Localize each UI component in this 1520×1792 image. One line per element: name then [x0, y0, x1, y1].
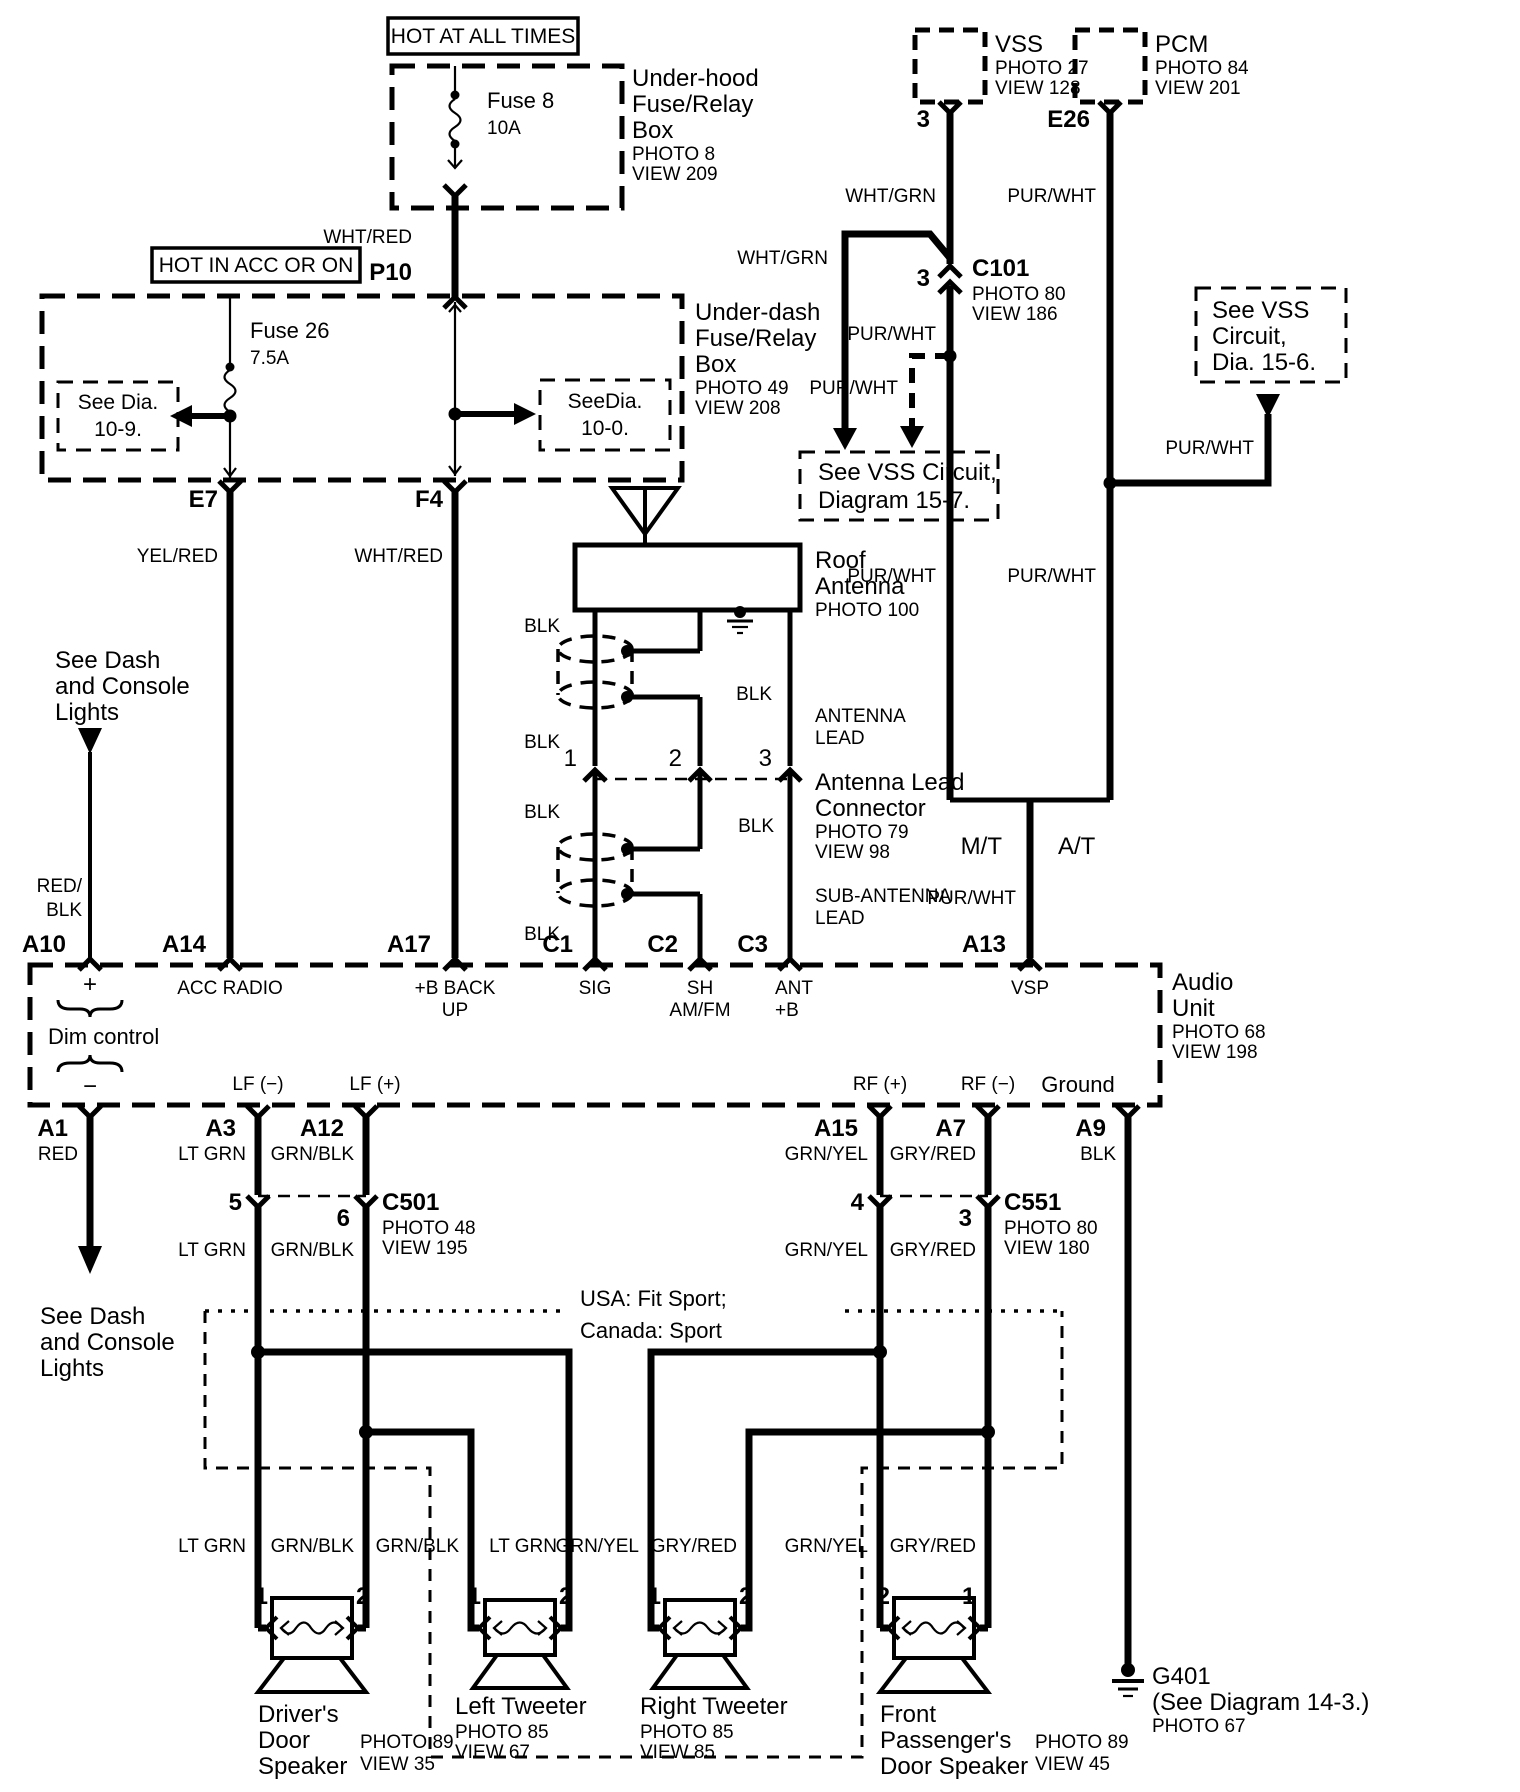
passenger-speaker-photo: PHOTO 89 — [1035, 1732, 1129, 1753]
wiring-diagram: HOT AT ALL TIMES Fuse 8 10A Under-hood F… — [0, 0, 1520, 1792]
g401-ref: (See Diagram 14-3.) — [1152, 1689, 1369, 1716]
wire-label-wht-grn-top: WHT/GRN — [845, 186, 936, 207]
vss-pin: 3 — [917, 106, 930, 133]
arrow-to-dia-10-9 — [170, 405, 192, 427]
pin-a14: A14 — [162, 931, 207, 958]
pin-a9: A9 — [1075, 1115, 1106, 1142]
pcm-pin: E26 — [1047, 106, 1090, 133]
fuse26-symbol — [225, 370, 236, 412]
fn-vsp: VSP — [1011, 978, 1049, 999]
arrow-to-dia-10-0 — [514, 403, 536, 425]
wire-label-pur-wht-156: PUR/WHT — [1165, 438, 1254, 459]
fn-sh-1: SH — [687, 978, 713, 999]
left-tweeter-title: Left Tweeter — [455, 1693, 587, 1720]
wire-label-pur-wht-mid1: PUR/WHT — [847, 566, 936, 587]
pin-e7: E7 — [189, 486, 218, 513]
fuse8-rating: 10A — [487, 118, 521, 139]
underdash-title-1: Under-dash — [695, 299, 820, 326]
fn-ground: Ground — [1041, 1072, 1114, 1097]
wire-label-pur-wht-mid2: PUR/WHT — [1007, 566, 1096, 587]
wire-label-blk-2: BLK — [736, 684, 772, 705]
fn-sig: SIG — [579, 978, 612, 999]
driver-speaker-title-1: Driver's — [258, 1701, 339, 1728]
hot-at-all-times-label: HOT AT ALL TIMES — [391, 25, 575, 48]
pin-a17: A17 — [387, 931, 431, 958]
driver-speaker-title-3: Speaker — [258, 1753, 347, 1780]
right-tweeter-pin-l: 1 — [648, 1583, 661, 1610]
underdash-view: VIEW 208 — [695, 398, 781, 419]
fuse26-label: Fuse 26 — [250, 318, 330, 343]
wire-label-wht-red-f4: WHT/RED — [354, 546, 443, 567]
left-tweeter-pin-l: 1 — [468, 1583, 481, 1610]
driver-speaker-photo: PHOTO 89 — [360, 1732, 454, 1753]
wire-label-pur-wht-top: PUR/WHT — [1007, 186, 1096, 207]
g401-title: G401 — [1152, 1663, 1211, 1690]
wire-label-yel-red: YEL/RED — [137, 546, 218, 567]
audio-unit-title-1: Audio — [1172, 969, 1233, 996]
pin-a13: A13 — [962, 931, 1006, 958]
tweeter-cone-icon — [473, 1655, 567, 1688]
sub-antenna-label-2: LEAD — [815, 908, 865, 929]
fn-ant-1: ANT — [775, 978, 813, 999]
wire-label-blk-a9: BLK — [1080, 1144, 1116, 1165]
see-dia-10-9-line1: See Dia. — [78, 391, 159, 414]
antenna-pin-2: 2 — [669, 745, 682, 772]
wire-label-grnblk-3: GRN/BLK — [271, 1536, 355, 1557]
passenger-door-speaker: 2 1 Front Passenger's Door Speaker PHOTO… — [877, 1583, 1129, 1780]
antenna-lead-label-1: ANTENNA — [815, 706, 906, 727]
fn-rf-minus: RF (−) — [961, 1074, 1015, 1095]
fn-backup-1: +B BACK — [415, 978, 496, 999]
wire-label-gryred-3: GRY/RED — [651, 1536, 737, 1557]
tweeter-cone-icon-2 — [653, 1655, 747, 1688]
see-dash-top-2: and Console — [55, 673, 190, 700]
passenger-speaker-title-1: Front — [880, 1701, 936, 1728]
fuse8-symbol — [450, 99, 461, 141]
pin-c1: C1 — [542, 931, 573, 958]
see-dia-10-0-line2: 10-0. — [581, 417, 629, 440]
pin-c3: C3 — [737, 931, 768, 958]
wire-label-pur-wht-c101: PUR/WHT — [847, 324, 936, 345]
see-vss-157-line2: Diagram 15-7. — [818, 487, 970, 514]
driver-speaker-pin-r: 2 — [356, 1583, 369, 1610]
c551-view: VIEW 180 — [1004, 1238, 1090, 1259]
antenna-pin-3: 3 — [759, 745, 772, 772]
antenna-connector-photo: PHOTO 79 — [815, 822, 909, 843]
speaker-wiring: LT GRN GRN/BLK GRN/BLK LT GRN GRN/YEL GR… — [178, 1207, 995, 1628]
wire-label-grnblk-2: GRN/BLK — [271, 1240, 355, 1261]
arrow-pur-wht — [900, 426, 924, 448]
see-dash-top-3: Lights — [55, 699, 119, 726]
pcm-view: VIEW 201 — [1155, 78, 1241, 99]
underhood-title-2: Fuse/Relay — [632, 91, 753, 118]
c501-view: VIEW 195 — [382, 1238, 468, 1259]
fn-dim-control: Dim control — [48, 1024, 159, 1049]
underhood-title-1: Under-hood — [632, 65, 759, 92]
underdash-title-3: Box — [695, 351, 736, 378]
mt-label: M/T — [961, 833, 1003, 860]
wire-label-grnblk-4: GRN/BLK — [376, 1536, 460, 1557]
roof-antenna-photo: PHOTO 100 — [815, 600, 919, 621]
wire-label-wht-grn-branch: WHT/GRN — [737, 248, 828, 269]
audio-unit-photo: PHOTO 68 — [1172, 1022, 1266, 1043]
c101-pin: 3 — [917, 265, 930, 292]
wire-label-gryred-2: GRY/RED — [890, 1240, 976, 1261]
antenna-lead-label-2: LEAD — [815, 728, 865, 749]
antenna-pin-1: 1 — [564, 745, 577, 772]
pcm-photo: PHOTO 84 — [1155, 58, 1249, 79]
underhood-fuse-box: Fuse 8 10A Under-hood Fuse/Relay Box PHO… — [392, 65, 759, 208]
wire-label-blk-3: BLK — [524, 732, 560, 753]
wire-label-ltgrn-3: LT GRN — [178, 1536, 246, 1557]
vss-view: VIEW 128 — [995, 78, 1081, 99]
speaker-cone-icon-2 — [880, 1658, 988, 1692]
wire-label-pur-wht-vsp: PUR/WHT — [927, 888, 1016, 909]
dash-console-lights-source: See Dash and Console Lights RED/ BLK — [37, 647, 190, 958]
sport-label-1: USA: Fit Sport; — [580, 1286, 727, 1311]
driver-speaker-pin-l: 1 — [255, 1583, 268, 1610]
pin-a7: A7 — [935, 1115, 966, 1142]
passenger-speaker-pin-l: 2 — [877, 1583, 890, 1610]
sport-variant-region: USA: Fit Sport; Canada: Sport — [205, 1286, 1062, 1757]
fn-sh-2: AM/FM — [669, 1000, 730, 1021]
fn-lf-plus: LF (+) — [349, 1074, 400, 1095]
right-tweeter-pin-r: 2 — [739, 1583, 752, 1610]
c501-pin-6: 6 — [337, 1205, 350, 1232]
right-tweeter: 1 2 Right Tweeter PHOTO 85 VIEW 85 — [640, 1583, 788, 1763]
c501-title: C501 — [382, 1189, 439, 1216]
pin-a15: A15 — [814, 1115, 858, 1142]
wire-label-gryred-1: GRY/RED — [890, 1144, 976, 1165]
driver-door-speaker: 1 2 Driver's Door Speaker PHOTO 89 VIEW … — [255, 1583, 454, 1780]
pin-f4: F4 — [415, 486, 444, 513]
wire-label-ltgrn-2: LT GRN — [178, 1240, 246, 1261]
right-tweeter-view: VIEW 85 — [640, 1742, 715, 1763]
underdash-photo: PHOTO 49 — [695, 378, 789, 399]
underdash-title-2: Fuse/Relay — [695, 325, 816, 352]
wire-label-grnyel-2: GRN/YEL — [785, 1240, 868, 1261]
pin-a1: A1 — [37, 1115, 68, 1142]
c501-photo: PHOTO 48 — [382, 1218, 476, 1239]
left-tweeter-view: VIEW 67 — [455, 1742, 530, 1763]
pin-c2: C2 — [647, 931, 678, 958]
brace-minus-icon — [58, 1055, 122, 1072]
wire-label-grnyel-4: GRN/YEL — [785, 1536, 868, 1557]
wire-label-gryred-4: GRY/RED — [890, 1536, 976, 1557]
wire-label-ltgrn-1: LT GRN — [178, 1144, 246, 1165]
passenger-speaker-view: VIEW 45 — [1035, 1754, 1110, 1775]
antenna-connector-title-1: Antenna Lead — [815, 769, 964, 796]
arrow-to-dash-lights — [78, 1246, 102, 1274]
right-tweeter-title: Right Tweeter — [640, 1693, 788, 1720]
arrow-from-dash-lights — [78, 728, 102, 754]
driver-speaker-title-2: Door — [258, 1727, 310, 1754]
passenger-speaker-pin-r: 1 — [962, 1583, 975, 1610]
wire-label-pur-wht-branch: PUR/WHT — [809, 378, 898, 399]
fn-minus: − — [83, 1073, 97, 1100]
right-tweeter-photo: PHOTO 85 — [640, 1722, 734, 1743]
fn-ant-2: +B — [775, 1000, 799, 1021]
wire-label-red: RED — [38, 1144, 78, 1165]
left-tweeter-photo: PHOTO 85 — [455, 1722, 549, 1743]
g401-photo: PHOTO 67 — [1152, 1716, 1246, 1737]
underhood-title-3: Box — [632, 117, 673, 144]
wire-label-wht-red-p10: WHT/RED — [323, 227, 412, 248]
passenger-speaker-title-2: Passenger's — [880, 1727, 1011, 1754]
c551-photo: PHOTO 80 — [1004, 1218, 1098, 1239]
fn-rf-plus: RF (+) — [853, 1074, 907, 1095]
fn-lf-minus: LF (−) — [232, 1074, 283, 1095]
see-dash-top-1: See Dash — [55, 647, 160, 674]
see-dash-bottom-2: and Console — [40, 1329, 175, 1356]
see-vss-156-line1: See VSS — [1212, 297, 1309, 324]
c551-pin-3: 3 — [959, 1205, 972, 1232]
see-vss-156-line3: Dia. 15-6. — [1212, 349, 1316, 376]
see-vss-157-line1: See VSS Circuit, — [818, 459, 997, 486]
mt-at-bracket: M/T A/T PUR/WHT — [927, 800, 1110, 958]
underdash-fuse-box: Fuse 26 7.5A See Dia. 10-9. SeeDia. 10-0… — [42, 296, 820, 480]
arrow-wht-grn — [833, 428, 857, 450]
c101-photo: PHOTO 80 — [972, 284, 1066, 305]
speaker-cone-icon — [258, 1658, 366, 1692]
see-dash-bottom-3: Lights — [40, 1355, 104, 1382]
audio-unit-view: VIEW 198 — [1172, 1042, 1258, 1063]
hot-in-acc-banner: HOT IN ACC OR ON — [152, 248, 360, 282]
wire-label-ltgrn-4: LT GRN — [489, 1536, 557, 1557]
fn-acc-radio: ACC RADIO — [177, 978, 283, 999]
wire-label-red-blk: BLK — [46, 900, 82, 921]
c101-view: VIEW 186 — [972, 304, 1058, 325]
fn-plus: + — [83, 971, 97, 998]
wire-label-grnblk-1: GRN/BLK — [271, 1144, 355, 1165]
c501-pin-5: 5 — [229, 1189, 242, 1216]
g401-ground: G401 (See Diagram 14-3.) PHOTO 67 — [1112, 1117, 1369, 1737]
see-dia-10-9-line2: 10-9. — [94, 418, 142, 441]
driver-speaker-view: VIEW 35 — [360, 1754, 435, 1775]
wire-label-blk-5: BLK — [738, 816, 774, 837]
wire-label-blk-4: BLK — [524, 802, 560, 823]
at-label: A/T — [1058, 833, 1096, 860]
antenna-lead-wiring: BLK BLK BLK BLK BLK BLK 1 2 3 ANTENNA LE… — [524, 610, 964, 958]
underhood-photo: PHOTO 8 — [632, 144, 715, 165]
pin-p10: P10 — [369, 259, 412, 286]
c101-connector: 3 C101 PHOTO 80 VIEW 186 — [917, 255, 1066, 325]
see-dia-10-0-line1: SeeDia. — [568, 390, 643, 413]
c551-pin-4: 4 — [851, 1189, 865, 1216]
pin-a12: A12 — [300, 1115, 344, 1142]
pin-a10: A10 — [22, 931, 66, 958]
wire-label-red-slash: RED/ — [37, 876, 83, 897]
audio-unit-title-2: Unit — [1172, 995, 1215, 1022]
fuse26-rating: 7.5A — [250, 348, 289, 369]
vss-branch-156: See VSS Circuit, Dia. 15-6. PUR/WHT — [1104, 288, 1347, 490]
antenna-connector-title-2: Connector — [815, 795, 926, 822]
hot-in-acc-label: HOT IN ACC OR ON — [159, 254, 353, 277]
passenger-speaker-title-3: Door Speaker — [880, 1753, 1028, 1780]
pcm-title: PCM — [1155, 31, 1208, 58]
audio-unit: Audio Unit PHOTO 68 VIEW 198 A10 A14 A17… — [22, 931, 1266, 1142]
c551-title: C551 — [1004, 1189, 1061, 1216]
wire-label-grnyel-3: GRN/YEL — [556, 1536, 639, 1557]
fn-backup-2: UP — [442, 1000, 468, 1021]
sport-label-2: Canada: Sport — [580, 1318, 722, 1343]
hot-at-all-times-banner: HOT AT ALL TIMES — [388, 18, 578, 54]
vss-title: VSS — [995, 31, 1043, 58]
fuse8-label: Fuse 8 — [487, 88, 554, 113]
underhood-view: VIEW 209 — [632, 164, 718, 185]
antenna-connector-view: VIEW 98 — [815, 842, 890, 863]
see-dash-bottom-1: See Dash — [40, 1303, 145, 1330]
wire-label-blk-1: BLK — [524, 616, 560, 637]
c101-title: C101 — [972, 255, 1029, 282]
wire-label-grnyel-1: GRN/YEL — [785, 1144, 868, 1165]
brace-plus-icon — [58, 1000, 122, 1017]
left-tweeter-pin-r: 2 — [559, 1583, 572, 1610]
see-vss-156-line2: Circuit, — [1212, 323, 1287, 350]
pin-a3: A3 — [205, 1115, 236, 1142]
